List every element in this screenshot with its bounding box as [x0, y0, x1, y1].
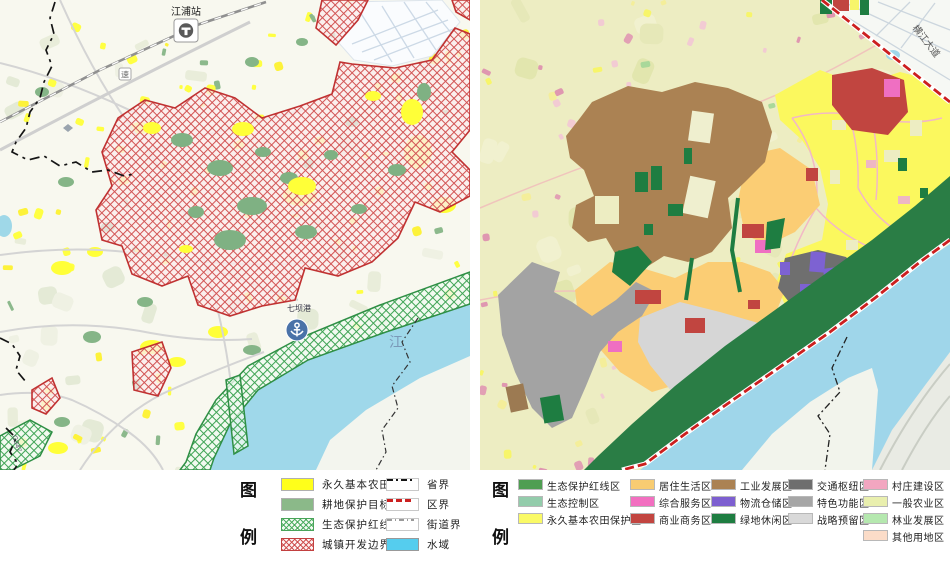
station-label: 江浦站: [171, 5, 201, 18]
expressway-shield-icon: 速: [119, 68, 131, 80]
legend-label: 一般农业区: [892, 495, 945, 510]
left-map-panel: 江浦站 速 G347 七坝港 江: [0, 0, 470, 470]
legend-swatch: [711, 513, 736, 524]
legend-line-sample: [386, 498, 419, 511]
legend-title-char: 图: [240, 476, 257, 501]
right-map-panel: 横江大道: [480, 0, 950, 470]
legend-label: 综合服务区: [659, 495, 712, 510]
legend-line: [387, 479, 414, 481]
legend-swatch: [281, 538, 314, 551]
legend-swatch: [788, 479, 813, 490]
legend-label: 省界: [427, 477, 450, 492]
legend-swatch: [630, 513, 655, 524]
legend-swatch: [711, 496, 736, 507]
port-label: 七坝港: [287, 303, 311, 313]
legend-swatch: [518, 479, 543, 490]
legend-line-sample: [386, 478, 419, 491]
legend-label: 工业发展区: [740, 478, 793, 493]
left-map: 江浦站 速 G347 七坝港 江: [0, 0, 470, 470]
legend-swatch: [281, 478, 314, 491]
right-legend: 图例生态保护红线区生态控制区永久基本农田保护区居住生活区综合服务区商业商务区工业…: [480, 470, 950, 561]
legend-line: [387, 519, 414, 521]
legend-swatch: [281, 498, 314, 511]
legend-label: 生态控制区: [547, 495, 600, 510]
port-anchor-icon: [286, 319, 308, 341]
legend-label: 特色功能区: [817, 495, 870, 510]
legend-swatch: [630, 479, 655, 490]
legend-label: 城镇开发边界: [322, 537, 391, 552]
page: 江浦站 速 G347 七坝港 江: [0, 0, 950, 561]
legend-swatch: [863, 479, 888, 490]
legend-label: 商业商务区: [659, 512, 712, 527]
legend-label: 战略预留区: [817, 512, 870, 527]
legend-swatch: [863, 496, 888, 507]
legend-label: 街道界: [427, 517, 462, 532]
svg-text:速: 速: [121, 71, 129, 80]
legend-line-sample: [386, 538, 419, 551]
legend-line: [387, 499, 414, 502]
legend-label: 生态保护红线: [322, 517, 391, 532]
legend-label: 耕地保护目标: [322, 497, 391, 512]
legend-label: 生态保护红线区: [547, 478, 621, 493]
legend-swatch: [518, 513, 543, 524]
legend-swatch: [788, 513, 813, 524]
legend-swatch: [788, 496, 813, 507]
legend-label: 居住生活区: [659, 478, 712, 493]
legend-swatch: [281, 518, 314, 531]
legend-label: 林业发展区: [892, 512, 945, 527]
legend-label: 村庄建设区: [892, 478, 945, 493]
legend-title-char: 例: [240, 523, 257, 548]
railway-station-icon: [174, 19, 198, 42]
legend-swatch: [630, 496, 655, 507]
right-map: 横江大道: [480, 0, 950, 470]
legend-label: 水域: [427, 537, 450, 552]
yangtze-river-label: 江: [389, 334, 403, 350]
legend-label: 其他用地区: [892, 529, 945, 544]
legend-label: 区界: [427, 497, 450, 512]
legend-swatch: [863, 530, 888, 541]
legend-line-sample: [386, 518, 419, 531]
legend-swatch: [863, 513, 888, 524]
legend-label: 永久基本农田保护区: [547, 512, 642, 527]
legend-label: 物流仓储区: [740, 495, 793, 510]
legend-title-char: 例: [492, 523, 509, 548]
legend-swatch: [518, 496, 543, 507]
legend-label: 永久基本农田: [322, 477, 391, 492]
legend-label: 绿地休闲区: [740, 512, 793, 527]
left-legend: 图例永久基本农田耕地保护目标生态保护红线城镇开发边界省界区界街道界水域: [0, 470, 470, 561]
legend-swatch: [711, 479, 736, 490]
legend-title-char: 图: [492, 476, 509, 501]
legend-label: 交通枢纽区: [817, 478, 870, 493]
